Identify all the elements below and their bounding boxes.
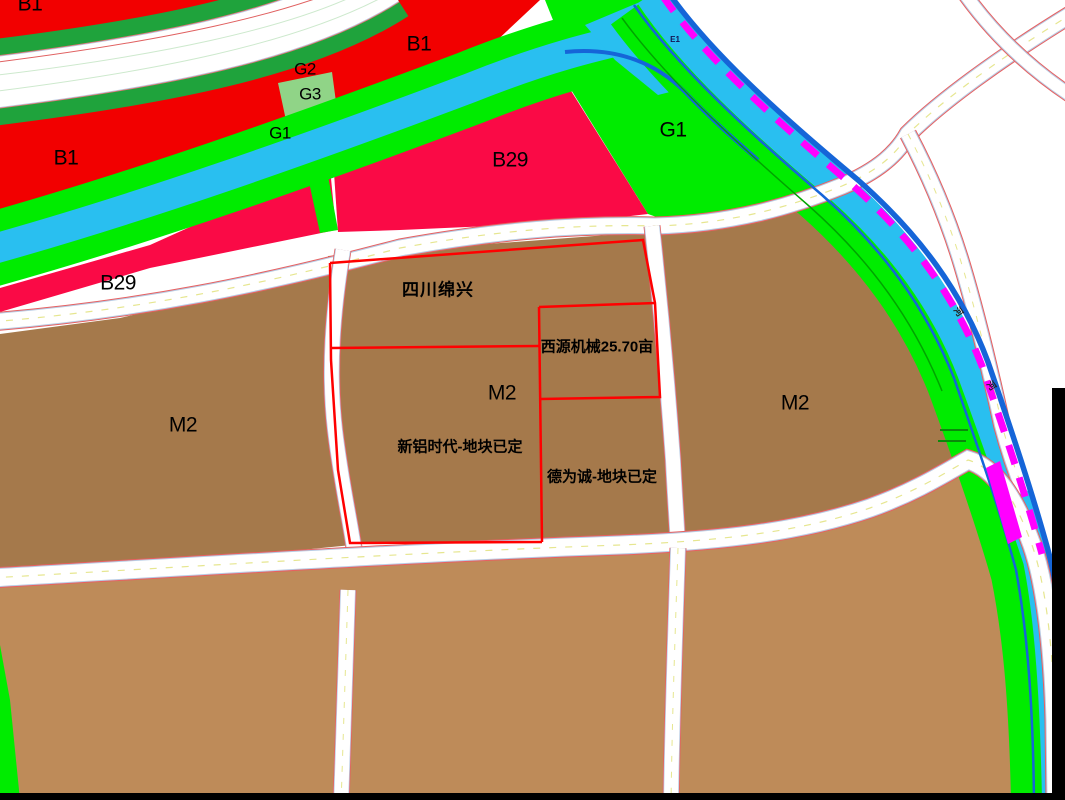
zone-label-m2-center: M2 [488, 383, 516, 404]
zone-label-b1-left: B1 [54, 148, 79, 169]
road-bottom-left-vertical [341, 590, 348, 800]
zone-label-b29-left: B29 [100, 273, 136, 294]
zone-label-g3: G3 [299, 86, 321, 103]
zone-label-e1: E1 [670, 36, 680, 44]
zone-label-g2: G2 [294, 61, 316, 78]
parcel-label-xinlv-shidai: 新铝时代-地块已定 [398, 440, 523, 455]
zone-label-g1-parcel: G1 [659, 120, 686, 141]
zone-label-m2-left: M2 [169, 415, 197, 436]
screen-edge-black-right [1052, 388, 1065, 800]
zone-label-b1-topleft: B1 [18, 0, 43, 15]
zone-label-g1-canal: G1 [269, 125, 291, 142]
zone-label-b1-mid: B1 [407, 34, 432, 55]
zoning-map-screenshot: B1 B1 B1 G2 G3 G1 G1 E1 B29 B29 M2 M2 M2… [0, 0, 1065, 800]
zone-label-b29-main: B29 [492, 150, 528, 171]
parcel-label-xiyuan-jixie: 西源机械25.70亩 [541, 340, 654, 355]
zone-label-m2-right: M2 [781, 393, 809, 414]
road-bottom-mid-vertical [671, 548, 678, 800]
zoning-map-canvas [0, 0, 1065, 800]
parcel-label-sichuan-mianxing: 四川绵兴 [402, 282, 474, 299]
screen-edge-black-bottom [0, 793, 1065, 800]
parcel-label-dewei-cheng: 德为诚-地块已定 [547, 470, 657, 485]
